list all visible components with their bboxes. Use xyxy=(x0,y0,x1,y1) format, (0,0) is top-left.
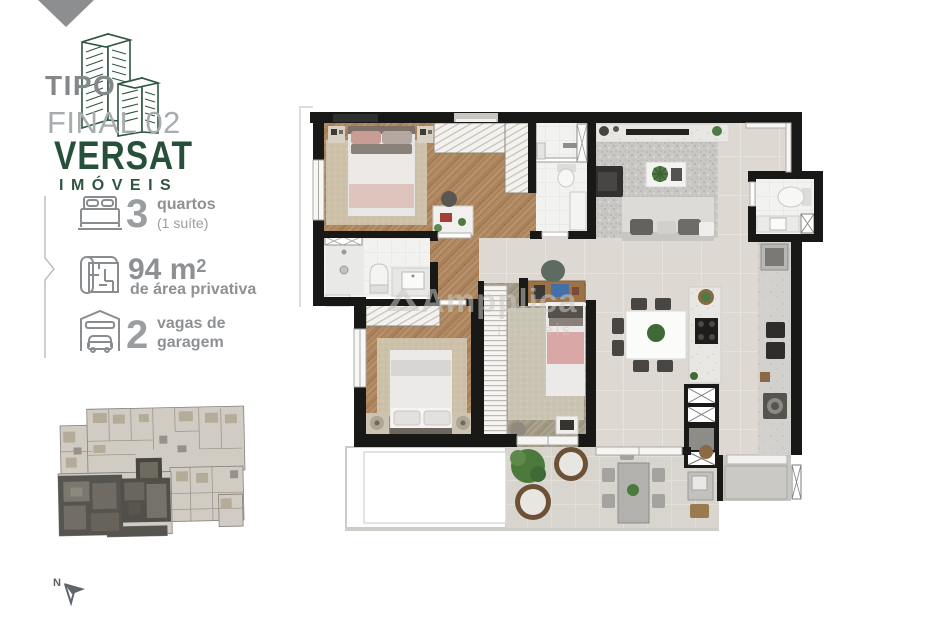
svg-text:Ampplica: Ampplica xyxy=(421,282,578,319)
svg-text:Imóveis: Imóveis xyxy=(497,322,573,339)
